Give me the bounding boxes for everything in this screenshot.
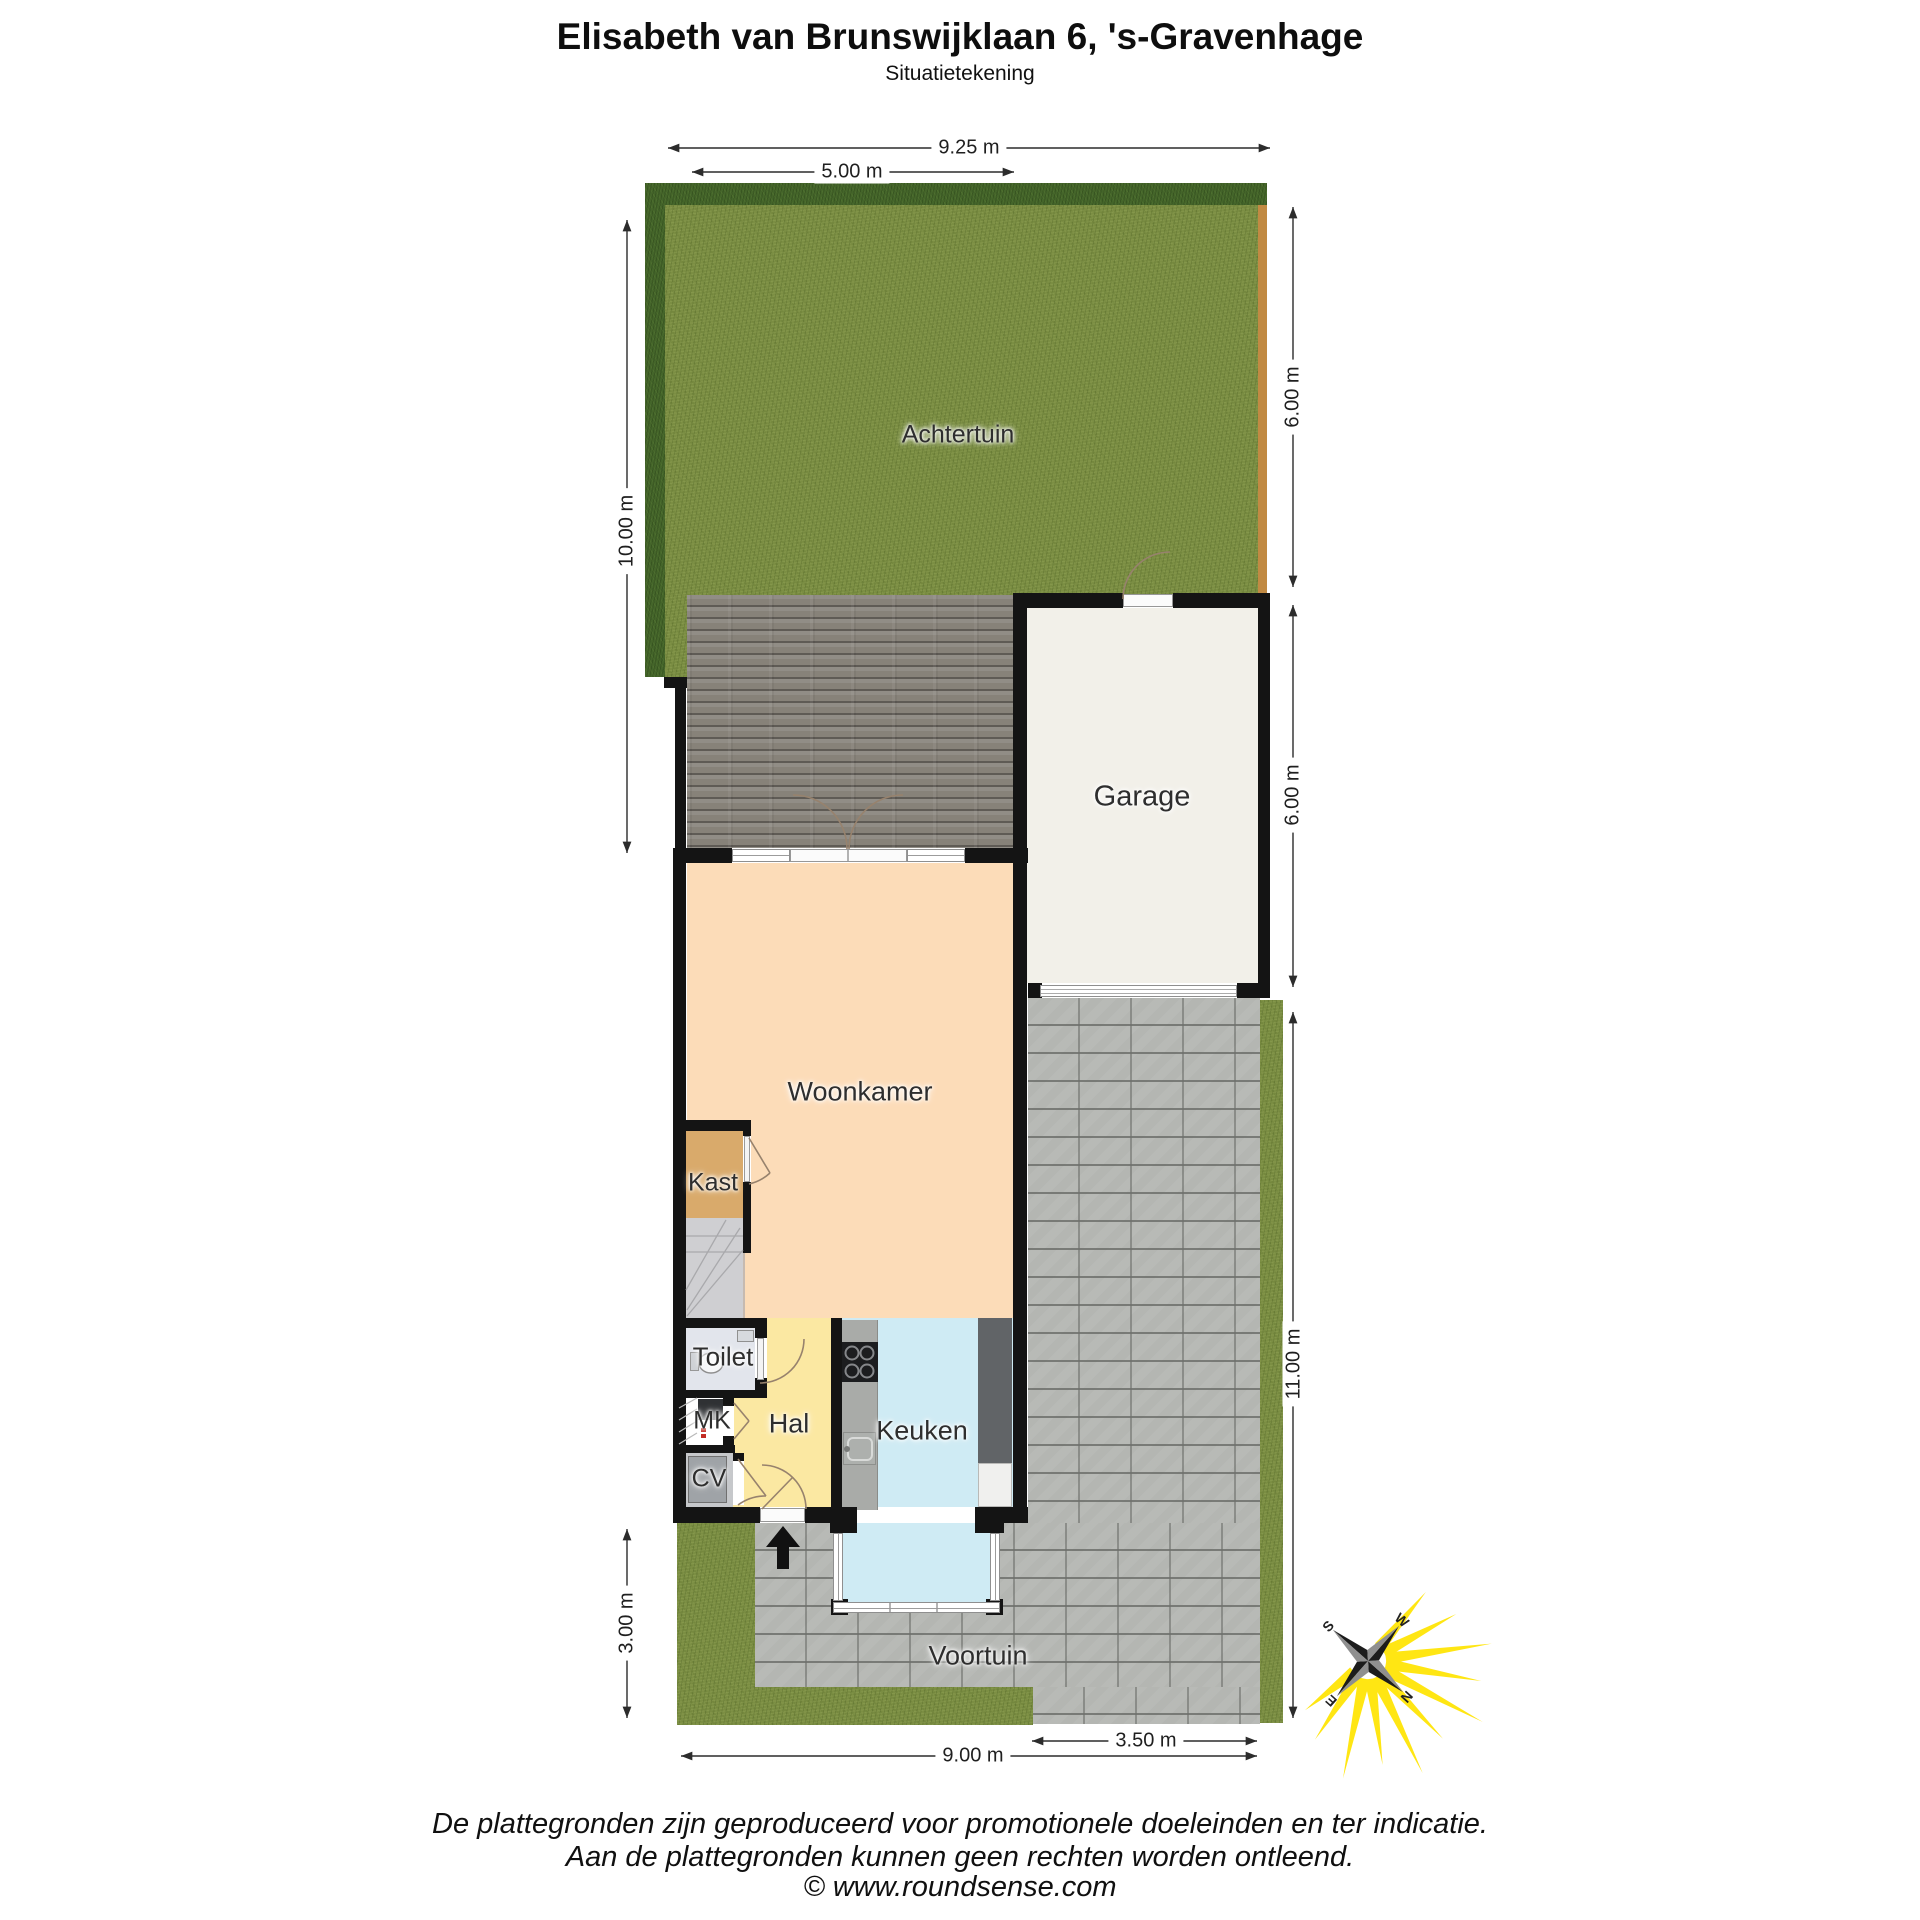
- kitchen-faucet: [844, 1446, 850, 1452]
- dim-driveway-width: 3.50 m: [1108, 1730, 1183, 1753]
- label-kast: Kast: [688, 1169, 738, 1198]
- plan-linework: S W N E: [0, 0, 1920, 1920]
- toilet-door-arc: [760, 1339, 804, 1383]
- dim-right-depth: 11.00 m: [1283, 1322, 1306, 1407]
- compass-label-south: S: [1319, 1617, 1337, 1635]
- stove-burners: [846, 1347, 874, 1378]
- footer-copyright: © www.roundsense.com: [0, 1871, 1920, 1904]
- label-hal: Hal: [769, 1409, 810, 1440]
- label-garage: Garage: [1094, 781, 1191, 814]
- dim-garden-depth: 6.00 m: [1282, 359, 1305, 434]
- dim-plot-width: 9.25 m: [931, 137, 1006, 160]
- dim-garage-depth: 6.00 m: [1282, 757, 1305, 832]
- label-keuken: Keuken: [876, 1416, 968, 1447]
- label-achtertuin: Achtertuin: [902, 421, 1015, 450]
- label-voortuin: Voortuin: [928, 1641, 1027, 1672]
- dim-rear-facade: 5.00 m: [814, 161, 889, 184]
- dim-front-width: 9.00 m: [935, 1745, 1010, 1768]
- garden-door-arc: [1123, 552, 1170, 599]
- terrace-door-arc-left: [793, 795, 847, 849]
- compass-rose: S W N E: [1301, 1588, 1492, 1779]
- dim-left-depth: 10.00 m: [616, 488, 639, 574]
- label-toilet: Toilet: [693, 1342, 754, 1373]
- front-door-leaf: [762, 1477, 793, 1509]
- mk-door-fold-1: [734, 1403, 749, 1421]
- kitchen-sink-basin: [848, 1438, 872, 1460]
- label-mk: MK: [693, 1407, 731, 1436]
- closet-door-open-leaf: [749, 1138, 770, 1173]
- closet-door-arc: [749, 1173, 770, 1184]
- label-cv: CV: [692, 1465, 727, 1494]
- floor-plan-page: Elisabeth van Brunswijklaan 6, 's-Graven…: [0, 0, 1920, 1920]
- footer-disclaimer-2: Aan de plattegronden kunnen geen rechten…: [0, 1841, 1920, 1874]
- dim-front-garden-depth: 3.00 m: [616, 1585, 639, 1660]
- label-woonkamer: Woonkamer: [787, 1077, 932, 1108]
- cv-door-arc: [738, 1496, 766, 1505]
- footer-disclaimer-1: De plattegronden zijn geproduceerd voor …: [0, 1808, 1920, 1841]
- terrace-door-arc-right: [849, 795, 903, 849]
- mk-door-fold-2: [734, 1421, 749, 1439]
- cv-door-leaf: [738, 1459, 766, 1496]
- entrance-arrow: [766, 1526, 800, 1569]
- stair-treads: [686, 1220, 744, 1318]
